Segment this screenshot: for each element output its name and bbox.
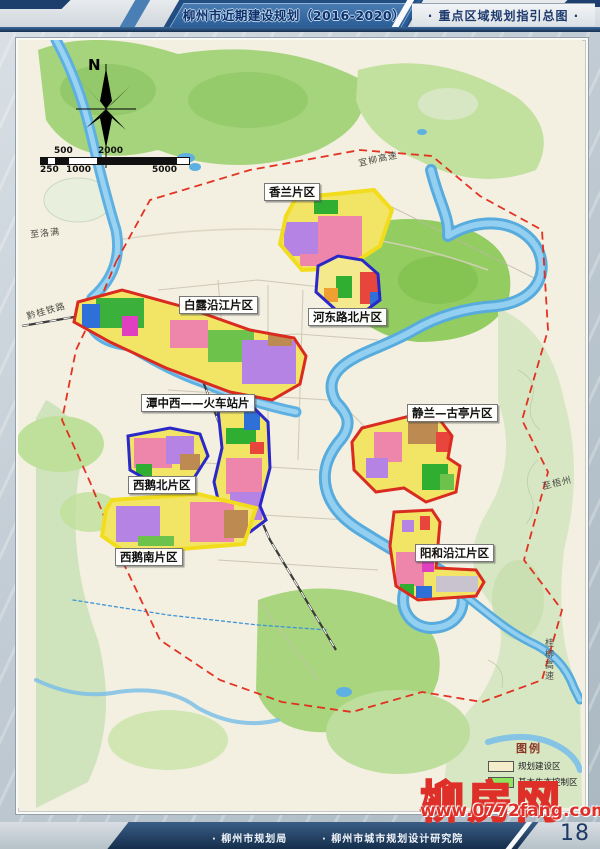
footer-credit-bureau: · 柳州市规划局 [212,830,287,845]
district-label-tanzhongxi: 潭中西——火车站片 [141,394,255,412]
scale-value-1000: 1000 [66,165,91,175]
page-title: 柳州市近期建设规划（2016-2020） [178,0,410,28]
legend-title: 图例 [516,740,588,756]
header-bar: 柳州市近期建设规划（2016-2020） · 重点区域规划指引总图 · [0,0,600,32]
scale-bar-graphic [40,157,190,165]
district-label-xienan: 西鹅南片区 [115,548,183,566]
page-number: 18 [560,822,590,846]
watermark-url: www.0772fang.com [420,801,600,821]
district-label-xiebei: 西鹅北片区 [128,476,196,494]
header-corner-accent [0,0,71,9]
scale-bar: 500 2000 250 1000 5000 [40,146,190,176]
scale-value-2000: 2000 [98,146,123,156]
district-label-bailu: 白露沿江片区 [179,296,258,314]
header-bottom-rule [0,27,600,32]
district-xienan-shape [102,494,258,552]
district-label-xianglan: 香兰片区 [264,183,320,201]
place-label-guiliu-expressway: 桂柳高速 [542,638,555,682]
district-label-yanghe: 阳和沿江片区 [415,544,494,562]
scale-value-250: 250 [40,165,59,175]
page-subtitle: · 重点区域规划指引总图 · [412,3,595,26]
footer-credit-institute: · 柳州市城市规划设计研究院 [322,830,463,845]
compass-north-label: N [88,56,101,74]
scale-value-5000: 5000 [152,165,177,175]
district-label-jinglan: 静兰—古亭片区 [407,404,498,422]
map-frame: N 500 2000 250 1000 5000 香兰片区 白露沿江片区 河东路… [16,38,588,814]
district-label-hedong: 河东路北片区 [308,308,387,326]
scale-value-500: 500 [54,146,73,156]
